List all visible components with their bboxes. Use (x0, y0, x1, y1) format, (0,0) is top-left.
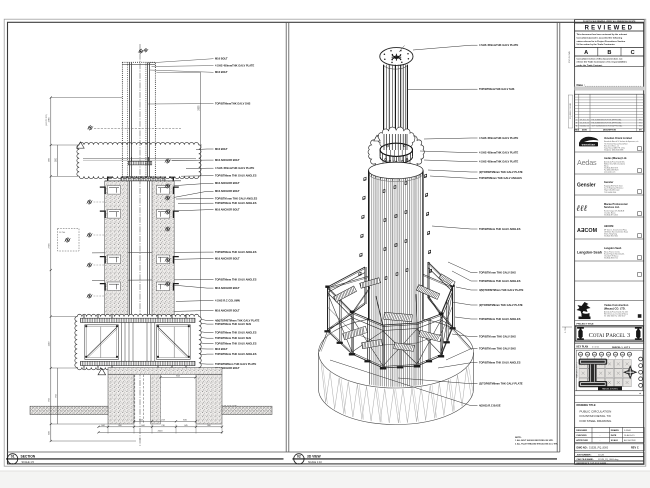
svg-text:DRAWN: DRAWN (611, 429, 619, 432)
svg-text:T 81.3.6406.7600: T 81.3.6406.7600 (604, 192, 616, 194)
svg-text:APPROVED: APPROVED (576, 439, 588, 442)
svg-text:RE-SUBMISSION FOR APPROVAL: RE-SUBMISSION FOR APPROVAL (592, 119, 622, 122)
svg-text:2706: 2706 (48, 243, 50, 249)
svg-text:1. ALL BOLT SHOULD BE FIXING O: 1. ALL BOLT SHOULD BE FIXING ON SITE. (515, 439, 554, 442)
svg-text:M16 BOLT: M16 BOLT (215, 347, 228, 351)
svg-text:PUBLIC CIRCULATION: PUBLIC CIRCULATION (580, 410, 612, 414)
svg-text:2600: 2600 (158, 430, 164, 432)
svg-text:Yadea Construction: Yadea Construction (604, 303, 629, 307)
svg-text:REFERENCE CAD FILE NAME :: REFERENCE CAD FILE NAME : (577, 462, 608, 465)
svg-text:KEY PLAN: KEY PLAN (577, 346, 589, 349)
svg-text:M16 BOLT: M16 BOLT (215, 147, 228, 151)
svg-text:Tel: 2832 3016 Fax: 2832 3017: Tel: 2832 3016 Fax: 2832 3017 (604, 316, 625, 318)
svg-text:1ST SUBMISSION FOR APPROVAL: 1ST SUBMISSION FOR APPROVAL (592, 124, 623, 127)
svg-text:PARCEL 1, LOT 1: PARCEL 1, LOT 1 (576, 362, 579, 377)
svg-text:This document has been reviewe: This document has been reviewed by the r… (577, 33, 628, 36)
svg-text:(2)TOP/BTM9mm THK GALV PLATE: (2)TOP/BTM9mm THK GALV PLATE (479, 170, 523, 174)
svg-text:Aedas: Aedas (577, 158, 597, 167)
svg-text:TOP/BTMmm THK GALV SHS: TOP/BTMmm THK GALV SHS (215, 336, 251, 340)
svg-text:TOP/BTM mm THK GALV ANGLES: TOP/BTM mm THK GALV ANGLES (215, 196, 257, 200)
svg-text:TOP/BTM mm THK GALV SHS: TOP/BTM mm THK GALV SHS (479, 335, 516, 339)
svg-text:Langdon Seah: Langdon Seah (604, 247, 622, 250)
svg-text:4 SHS 450mmTHK GALV PLATE: 4 SHS 450mmTHK GALV PLATE (479, 43, 519, 47)
svg-text:4 SHS 450mmTHK GALV PLATE: 4 SHS 450mmTHK GALV PLATE (479, 136, 519, 140)
svg-text:TOP/BTMmm THK GALV ANGLES: TOP/BTMmm THK GALV ANGLES (215, 201, 257, 205)
svg-text:SECTION: SECTION (21, 455, 36, 459)
svg-text:M16 ANCHOR BOLT: M16 ANCHOR BOLT (215, 208, 240, 212)
svg-text:PARCEL 3 HOTEL: PARCEL 3 HOTEL (602, 387, 618, 390)
svg-text:2. ALL FILLET WELDED SHOULD BE: 2. ALL FILLET WELDED SHOULD BE 3mm THK. (515, 442, 558, 445)
svg-text:4 SHS R.C COLUMN: 4 SHS R.C COLUMN (215, 298, 240, 302)
svg-text:PQ-8000-C 5152B: PQ-8000-C 5152B (570, 102, 572, 118)
svg-text:TOP/BTMmmTHK GALV SHS: TOP/BTMmmTHK GALV SHS (479, 87, 515, 91)
svg-text:TOP/BTM9mm THK GALV ANGLES: TOP/BTM9mm THK GALV ANGLES (479, 176, 522, 180)
svg-text:venetian: venetian (582, 143, 596, 147)
svg-text:PARCEL 1, LOT 3: PARCEL 1, LOT 3 (612, 346, 631, 349)
svg-text:M16 ANCHOR BOLT: M16 ANCHOR BOLT (215, 189, 240, 193)
svg-text:www.aedas.com: www.aedas.com (604, 172, 616, 174)
svg-text:Date :: Date : (577, 83, 585, 87)
svg-text:M16 ANCHOR BOLT: M16 ANCHOR BOLT (215, 181, 240, 185)
svg-text:ℓℓℓ: ℓℓℓ (577, 203, 588, 213)
svg-text:NOTE:: NOTE: (515, 437, 522, 439)
svg-text:5152B_PQ_8000: 5152B_PQ_8000 (589, 447, 609, 450)
svg-text:4 SHS 450mmTHK GALV PLATE: 4 SHS 450mmTHK GALV PLATE (215, 64, 255, 68)
svg-text:5152B: 5152B (598, 454, 605, 456)
svg-text:02: 02 (297, 454, 301, 458)
svg-text:(2)TOP/BTM9mm THK GALV PLATE: (2)TOP/BTM9mm THK GALV PLATE (479, 382, 523, 386)
svg-text:REV C: REV C (631, 447, 639, 450)
svg-text:Gensler: Gensler (604, 181, 613, 184)
svg-text:C: C (631, 50, 635, 56)
svg-text:Macau: Macau (604, 166, 609, 168)
svg-text:TOP/BTMmm THK GALV ANGLES: TOP/BTMmm THK GALV ANGLES (479, 279, 521, 283)
svg-text:09-JUL-15: 09-JUL-15 (580, 120, 589, 122)
svg-text:TOP/BTMmm THK GALV ANGLES: TOP/BTMmm THK GALV ANGLES (215, 277, 257, 281)
svg-text:Tel (853) 2833 9278: Tel (853) 2833 9278 (604, 168, 618, 170)
svg-text:TOP/BTMmm THK GALV ANGLES: TOP/BTMmm THK GALV ANGLES (215, 250, 257, 254)
svg-text:Tel (853) 2833 1710: Tel (853) 2833 1710 (604, 258, 618, 260)
svg-text:TOP/BTMmm THK GALV ANGLES: TOP/BTMmm THK GALV ANGLES (215, 174, 257, 178)
svg-text:B: B (607, 50, 611, 56)
svg-text:M16 ANCHOR BOLT: M16 ANCHOR BOLT (215, 256, 240, 260)
svg-text:Consultants(s) and is accorded: Consultants(s) and is accorded the follo… (577, 37, 623, 40)
svg-text:relieve the Trade Contractor o: relieve the Trade Contractor of its resp… (577, 61, 628, 64)
svg-text:status referred to in Projec: status referred to in Project Procedures… (577, 40, 626, 43)
svg-text:(2473 TO TOP): (2473 TO TOP) (46, 114, 48, 126)
svg-text:Tel (853) 287 12623: Tel (853) 287 12623 (604, 215, 618, 217)
svg-text:4 SHS 450mmTHK GALV PLATE: 4 SHS 450mmTHK GALV PLATE (215, 166, 255, 170)
svg-text:TOP/BTMmm THK GALV SHS: TOP/BTMmm THK GALV SHS (215, 322, 251, 326)
svg-text:26-MAY-15: 26-MAY-15 (580, 124, 589, 127)
svg-text:TOP/BTMmm THK GALV ANGLES: TOP/BTMmm THK GALV ANGLES (215, 331, 257, 335)
svg-text:TOP/BTM/8mm THK GALV PLATE: TOP/BTM/8mm THK GALV PLATE (215, 362, 256, 366)
svg-text:Venetian Orient Limited: Venetian Orient Limited (604, 137, 632, 140)
svg-text:AECOM: AECOM (604, 225, 613, 228)
svg-text:RE-SUBMISSION FOR APPROVAL: RE-SUBMISSION FOR APPROVAL (592, 121, 622, 124)
svg-text:14-AUG-15: 14-AUG-15 (624, 434, 635, 437)
svg-text:M16 ANCHOR BOLT: M16 ANCHOR BOLT (215, 308, 240, 312)
svg-text:PROJECT TITLE: PROJECT TITLE (577, 323, 595, 325)
svg-text:TOP/BTM mm THK GALV SHS: TOP/BTM mm THK GALV SHS (479, 347, 516, 351)
svg-text:4(SHS) R.C BASE: 4(SHS) R.C BASE (479, 404, 501, 408)
svg-text:CAD FILE NAME :: CAD FILE NAME : (577, 458, 595, 461)
svg-text:TOP/BTM mm THK GALV SHS: TOP/BTM mm THK GALV SHS (479, 270, 516, 274)
svg-text:DRAWING TITLE:: DRAWING TITLE: (577, 404, 597, 407)
svg-text:SCALE: SCALE (611, 439, 619, 442)
svg-text:Gensler: Gensler (577, 183, 596, 189)
svg-text:Tokyo 106-0032 Japan: Tokyo 106-0032 Japan (604, 190, 620, 192)
svg-text:COTAI PARCEL 3: COTAI PARCEL 3 (589, 332, 631, 339)
svg-text:TOP/BTMmm THK GALV ANGLES: TOP/BTMmm THK GALV ANGLES (479, 361, 521, 365)
svg-text:TOP/BTMmmTHK GALV SHS: TOP/BTMmmTHK GALV SHS (215, 102, 251, 106)
svg-text:3D VIEW: 3D VIEW (307, 455, 321, 459)
svg-text:Rua de Pequim Nos 244-246,: Rua de Pequim Nos 244-246, (604, 253, 625, 255)
svg-text:-: - (12, 461, 13, 465)
svg-text:SCALE 1:5: SCALE 1:5 (22, 461, 35, 464)
svg-text:Consultant review of this docu: Consultant review of this document does … (577, 57, 623, 60)
svg-text:Fax (853) 2833 9023: Fax (853) 2833 9023 (604, 170, 619, 172)
svg-text:TOP/BTMmm THK GALV ANGLES: TOP/BTMmm THK GALV ANGLES (215, 352, 257, 356)
svg-text:Langdon·Seah: Langdon·Seah (577, 251, 602, 255)
svg-text:TOP/BTMmm THK GALV ANGLES: TOP/BTMmm THK GALV ANGLES (479, 317, 521, 321)
svg-text:▲: ▲ (639, 392, 641, 395)
svg-text:4(M)TOP/BTMmm THK GALV PLATE: 4(M)TOP/BTMmm THK GALV PLATE (479, 288, 524, 292)
svg-text:under the Trade Contract.: under the Trade Contract. (577, 64, 603, 67)
svg-text:0 1 2 5m: 0 1 2 5m (592, 347, 599, 349)
svg-text:A: A (584, 50, 588, 56)
svg-text:M16 ANCHOR BOLT: M16 ANCHOR BOLT (215, 158, 240, 162)
svg-text:5152B_PQ_8000.dwg: 5152B_PQ_8000.dwg (598, 459, 619, 461)
svg-text:S.WHO: S.WHO (624, 430, 631, 432)
svg-text:AS SHOWN: AS SHOWN (624, 439, 636, 442)
svg-text:DESIGNED: DESIGNED (576, 430, 587, 432)
svg-text:4 SHS 450mmTHK GALV PLATE: 4 SHS 450mmTHK GALV PLATE (479, 160, 519, 164)
svg-text:-: - (298, 461, 299, 465)
svg-text:DWG NO :: DWG NO : (577, 447, 589, 450)
svg-text:TOP/BTMmm THK GALV ANGLES: TOP/BTMmm THK GALV ANGLES (479, 227, 521, 231)
svg-text:FOUNTAIN DETAIL 7/9: FOUNTAIN DETAIL 7/9 (580, 414, 611, 418)
svg-text:Aedas (Macau) Ltd.: Aedas (Macau) Ltd. (604, 157, 627, 160)
svg-text:4(M)TOP/BTMmm THK GALV PLATE: 4(M)TOP/BTMmm THK GALV PLATE (215, 318, 260, 322)
svg-text:JOB NUMBER :: JOB NUMBER : (577, 454, 593, 456)
svg-text:CHECKED: CHECKED (576, 435, 587, 437)
svg-text:01: 01 (11, 454, 15, 458)
svg-text:M16 BOLT: M16 BOLT (215, 57, 228, 61)
svg-text:DATE: DATE (611, 434, 617, 437)
svg-text:05-JUN-15: 05-JUN-15 (580, 122, 589, 124)
svg-text:(2)TOP/BTM9mm THK GALV PLATE: (2)TOP/BTM9mm THK GALV PLATE (479, 303, 523, 307)
svg-text:FSC-05-2345: FSC-05-2345 (569, 51, 571, 62)
svg-text:TOP/BTMmm THK GALV ANGLES: TOP/BTMmm THK GALV ANGLES (215, 341, 257, 345)
svg-text:Services Ltd.: Services Ltd. (604, 206, 620, 209)
svg-text:AƎCOM: AƎCOM (577, 228, 598, 234)
svg-text:5.4 for action by the Trade Co: 5.4 for action by the Trade Contractor. (577, 43, 616, 46)
svg-text:Tel (852) 3922 9000: Tel (852) 3922 9000 (604, 236, 618, 238)
svg-text:4 SHS 450mmTHK GALV PLATE: 4 SHS 450mmTHK GALV PLATE (479, 151, 519, 155)
svg-text:M16 BOLT: M16 BOLT (215, 70, 228, 74)
svg-text:10 Thk: 10 Thk (59, 232, 65, 234)
svg-text:S. THL: S. THL (565, 327, 567, 333)
svg-text:M16 ANCHOR BOLT: M16 ANCHOR BOLT (215, 286, 240, 290)
svg-text:(Macau) CO. LTD.: (Macau) CO. LTD. (604, 306, 626, 310)
svg-text:SCALE 1:10: SCALE 1:10 (308, 461, 322, 464)
svg-text:FOR STEEL DRAWING: FOR STEEL DRAWING (580, 419, 612, 423)
svg-text:2855: 2855 (198, 105, 200, 111)
svg-text:1786: 1786 (48, 117, 50, 123)
svg-text:Telephone: (853) 8118 2888: Telephone: (853) 8118 2888 (604, 150, 623, 152)
svg-text:1150: 1150 (48, 341, 50, 346)
